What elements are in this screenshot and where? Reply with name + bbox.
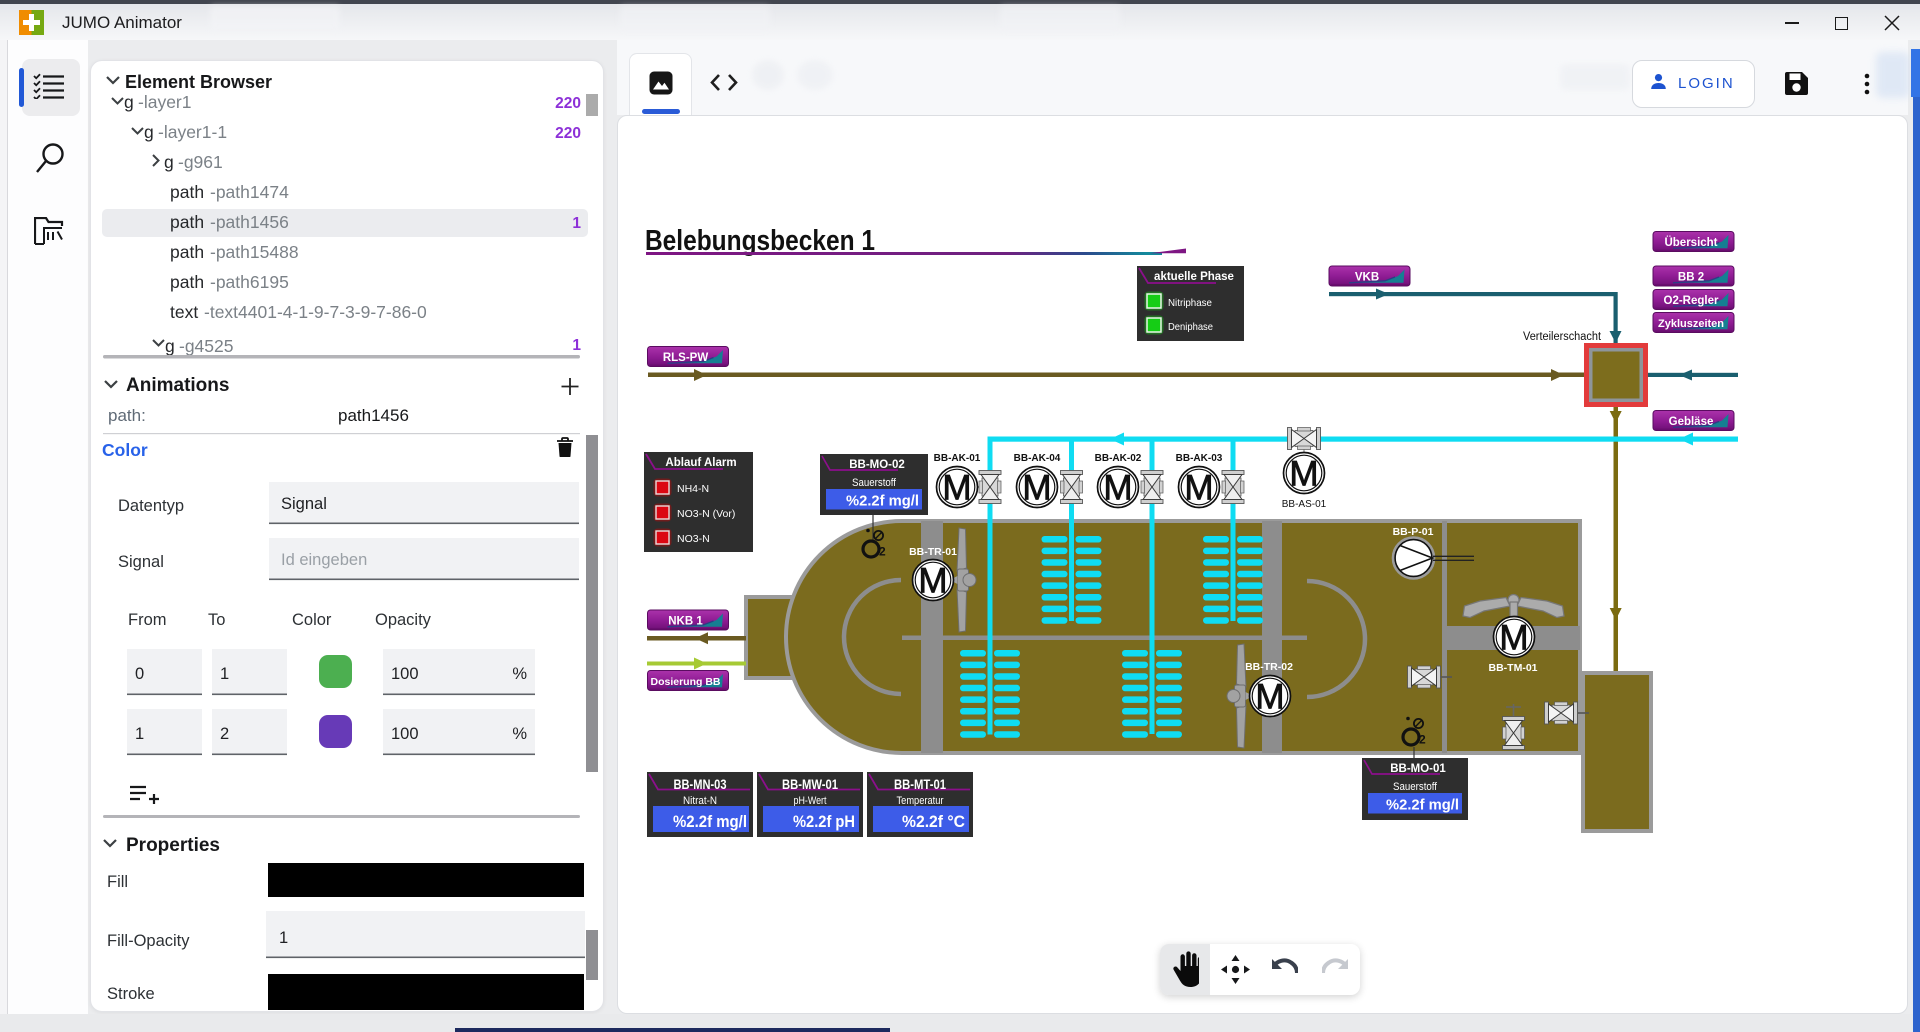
svg-text:Signal: Signal <box>281 495 327 513</box>
svg-text:-layer1-1: -layer1-1 <box>158 122 227 142</box>
svg-text:BB-MW-01: BB-MW-01 <box>782 777 838 792</box>
svg-text:Stroke: Stroke <box>107 985 155 1003</box>
svg-text:BB-P-01: BB-P-01 <box>1393 526 1434 538</box>
svg-text:VKB: VKB <box>1355 272 1379 284</box>
svg-text:text: text <box>170 302 198 322</box>
svg-text:0: 0 <box>135 665 144 683</box>
svg-text:Fill: Fill <box>107 873 128 891</box>
svg-text:100: 100 <box>391 725 419 743</box>
svg-text:path1456: path1456 <box>338 406 409 425</box>
svg-text:220: 220 <box>555 125 581 142</box>
svg-text:path: path <box>170 212 204 232</box>
svg-text:BB-MO-01: BB-MO-01 <box>1390 763 1446 775</box>
svg-text:%2.2f mg/l: %2.2f mg/l <box>846 493 919 510</box>
svg-text:BB-TM-01: BB-TM-01 <box>1489 662 1538 674</box>
svg-text:-text4401-4-1-9-7-3-9-7-86-0: -text4401-4-1-9-7-3-9-7-86-0 <box>204 302 427 322</box>
svg-text:-g961: -g961 <box>178 152 223 172</box>
svg-text:Signal: Signal <box>118 553 164 571</box>
svg-text:2: 2 <box>220 725 229 743</box>
svg-text:-path6195: -path6195 <box>210 272 289 292</box>
svg-text:%: % <box>512 725 527 743</box>
svg-text:100: 100 <box>391 665 419 683</box>
svg-text:Sauerstoff: Sauerstoff <box>852 477 897 489</box>
svg-text:BB-AK-03: BB-AK-03 <box>1176 453 1223 464</box>
svg-text:BB-MO-02: BB-MO-02 <box>849 459 905 471</box>
svg-text:Übersicht: Übersicht <box>1664 236 1717 249</box>
svg-text:BB-AK-02: BB-AK-02 <box>1095 453 1142 464</box>
svg-text:From: From <box>128 611 167 629</box>
svg-text:Verteilerschacht: Verteilerschacht <box>1523 331 1602 343</box>
svg-text:BB-AK-01: BB-AK-01 <box>934 453 981 464</box>
svg-text:path: path <box>170 182 204 202</box>
svg-text:g: g <box>165 336 175 356</box>
svg-text:path: path <box>170 272 204 292</box>
svg-text:-path1474: -path1474 <box>210 182 289 202</box>
svg-text:BB-TR-02: BB-TR-02 <box>1245 661 1293 673</box>
svg-text:aktuelle Phase: aktuelle Phase <box>1154 271 1234 283</box>
svg-text:Color: Color <box>292 611 332 629</box>
svg-text:g: g <box>144 122 154 142</box>
svg-text:NKB 1: NKB 1 <box>668 616 703 628</box>
svg-text:%: % <box>512 665 527 683</box>
svg-text:pH-Wert: pH-Wert <box>794 795 827 807</box>
svg-text:Fill-Opacity: Fill-Opacity <box>107 932 190 950</box>
svg-text:BB-AS-01: BB-AS-01 <box>1282 499 1327 510</box>
svg-text:1: 1 <box>572 337 581 354</box>
svg-text:path: path <box>170 242 204 262</box>
svg-text:BB-MN-03: BB-MN-03 <box>674 777 727 792</box>
svg-text:BB-MT-01: BB-MT-01 <box>894 777 946 792</box>
svg-text:%2.2f mg/l: %2.2f mg/l <box>1386 797 1459 814</box>
svg-text:%2.2f mg/l: %2.2f mg/l <box>673 812 747 831</box>
svg-text:Zykluszeiten: Zykluszeiten <box>1658 318 1724 330</box>
svg-text:Element Browser: Element Browser <box>125 72 272 92</box>
svg-text:NH4-N: NH4-N <box>677 483 709 495</box>
svg-text:Nitrat-N: Nitrat-N <box>683 795 717 807</box>
svg-text:%2.2f °C: %2.2f °C <box>902 812 965 831</box>
svg-text:Gebläse: Gebläse <box>1669 416 1714 428</box>
svg-text:NO3-N (Vor): NO3-N (Vor) <box>677 508 735 520</box>
svg-text:220: 220 <box>555 95 581 112</box>
svg-text:1: 1 <box>135 725 144 743</box>
svg-text:-path15488: -path15488 <box>210 242 299 262</box>
svg-text:Nitriphase: Nitriphase <box>1168 297 1212 309</box>
svg-text:1: 1 <box>220 665 229 683</box>
svg-text:g: g <box>124 92 134 112</box>
svg-text:BB-AK-04: BB-AK-04 <box>1014 453 1061 464</box>
svg-text:Dosierung BB: Dosierung BB <box>650 676 720 688</box>
svg-text:Animations: Animations <box>126 375 229 396</box>
svg-text:g: g <box>164 152 174 172</box>
svg-text:Sauerstoff: Sauerstoff <box>1393 781 1438 793</box>
svg-text:-g4525: -g4525 <box>179 336 234 356</box>
svg-text:-layer1: -layer1 <box>138 92 192 112</box>
svg-text:NO3-N: NO3-N <box>677 533 710 545</box>
svg-text:1: 1 <box>279 929 288 947</box>
svg-text:BB 2: BB 2 <box>1678 272 1704 284</box>
svg-text:Datentyp: Datentyp <box>118 497 184 515</box>
svg-text:path:: path: <box>108 406 146 425</box>
svg-text:BB-TR-01: BB-TR-01 <box>909 546 957 558</box>
svg-text:Properties: Properties <box>126 835 220 856</box>
svg-text:Ablauf Alarm: Ablauf Alarm <box>665 457 736 469</box>
svg-text:1: 1 <box>572 215 581 232</box>
svg-text:%2.2f pH: %2.2f pH <box>793 812 855 831</box>
svg-text:Deniphase: Deniphase <box>1168 321 1213 333</box>
svg-text:To: To <box>208 611 225 629</box>
svg-text:Id eingeben: Id eingeben <box>281 551 367 569</box>
svg-text:Temperatur: Temperatur <box>897 795 944 807</box>
svg-text:RLS-PW: RLS-PW <box>663 352 709 364</box>
svg-text:-path1456: -path1456 <box>210 212 289 232</box>
svg-text:Opacity: Opacity <box>375 611 432 629</box>
svg-text:O2-Regler: O2-Regler <box>1664 295 1719 307</box>
svg-text:Color: Color <box>102 440 148 460</box>
